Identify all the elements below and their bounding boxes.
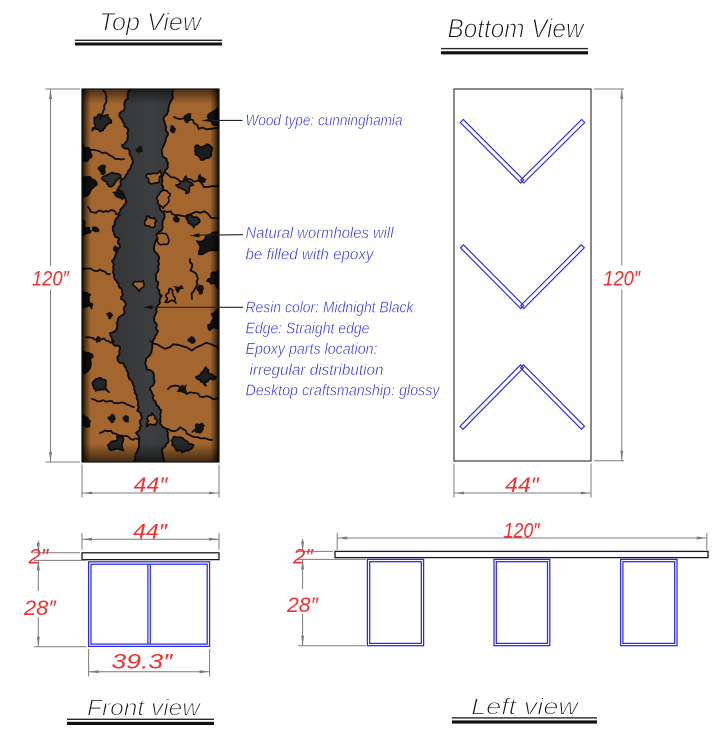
svg-text:Front view: Front view [87,695,202,721]
svg-text:44″: 44″ [505,474,541,497]
svg-text:Left view: Left view [471,693,580,719]
svg-text:Desktop craftsmanship: glossy: Desktop craftsmanship: glossy [246,383,441,400]
svg-text:120″: 120″ [32,268,70,291]
svg-text:irregular distribution: irregular distribution [250,362,384,379]
svg-text:Top View: Top View [99,9,203,37]
svg-text:28″: 28″ [23,597,58,620]
svg-text:Epoxy parts location:: Epoxy parts location: [246,341,378,358]
svg-text:120″: 120″ [504,519,541,542]
svg-text:120″: 120″ [603,268,641,291]
svg-text:28″: 28″ [286,594,320,617]
svg-text:44″: 44″ [134,474,170,497]
svg-text:44″: 44″ [133,520,169,543]
svg-text:39.3″: 39.3″ [112,651,175,674]
svg-text:Edge: Straight edge: Edge: Straight edge [246,320,370,337]
svg-text:Wood type: cunninghamia: Wood type: cunninghamia [246,113,403,130]
svg-text:be filled with epoxy: be filled with epoxy [246,246,375,263]
svg-text:Bottom View: Bottom View [448,14,586,44]
svg-text:Resin color: Midnight Black: Resin color: Midnight Black [246,300,415,317]
svg-text:Natural wormholes will: Natural wormholes will [246,225,395,242]
